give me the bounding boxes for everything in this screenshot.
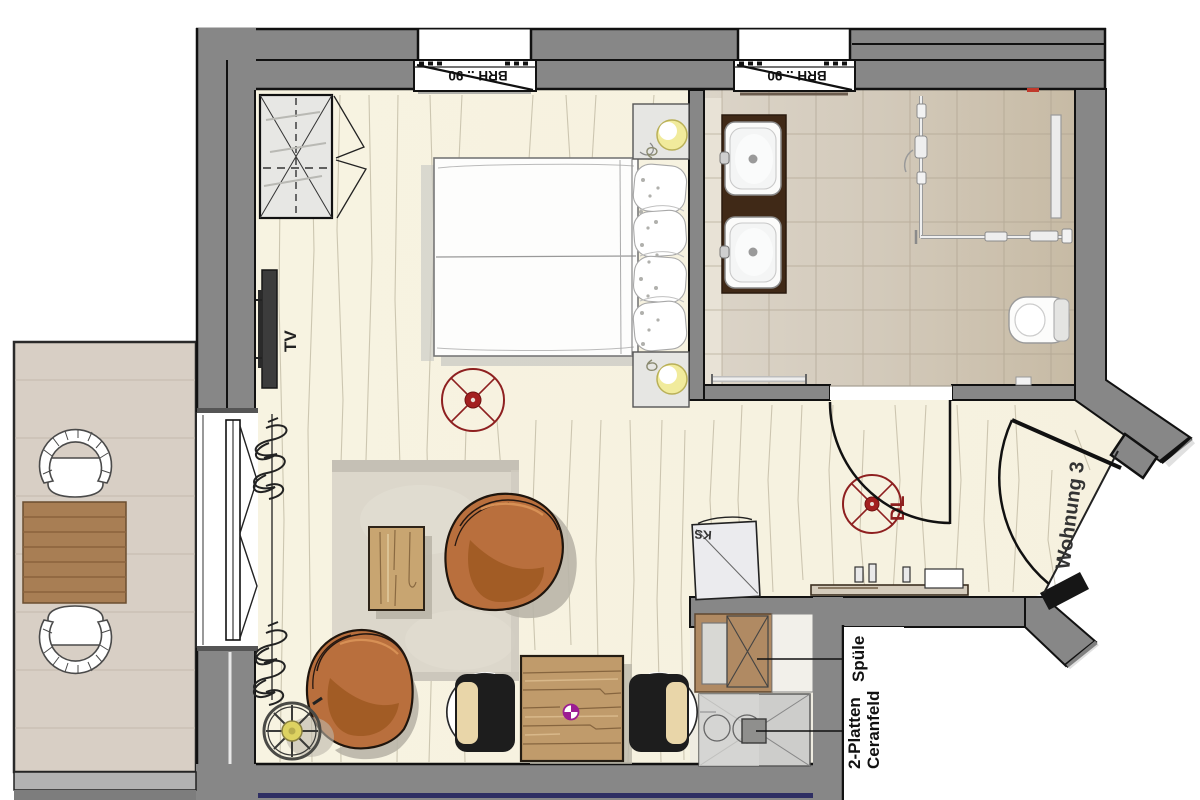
svg-text:BRH .. 90: BRH .. 90 xyxy=(448,68,507,83)
svg-text:Spüle: Spüle xyxy=(849,636,868,682)
svg-text:TV: TV xyxy=(281,330,300,352)
svg-text:BRH .. 90: BRH .. 90 xyxy=(767,68,826,83)
svg-text:Ceranfeld: Ceranfeld xyxy=(864,691,883,769)
svg-text:KS: KS xyxy=(694,527,712,542)
svg-text:2-Platten: 2-Platten xyxy=(845,697,864,769)
